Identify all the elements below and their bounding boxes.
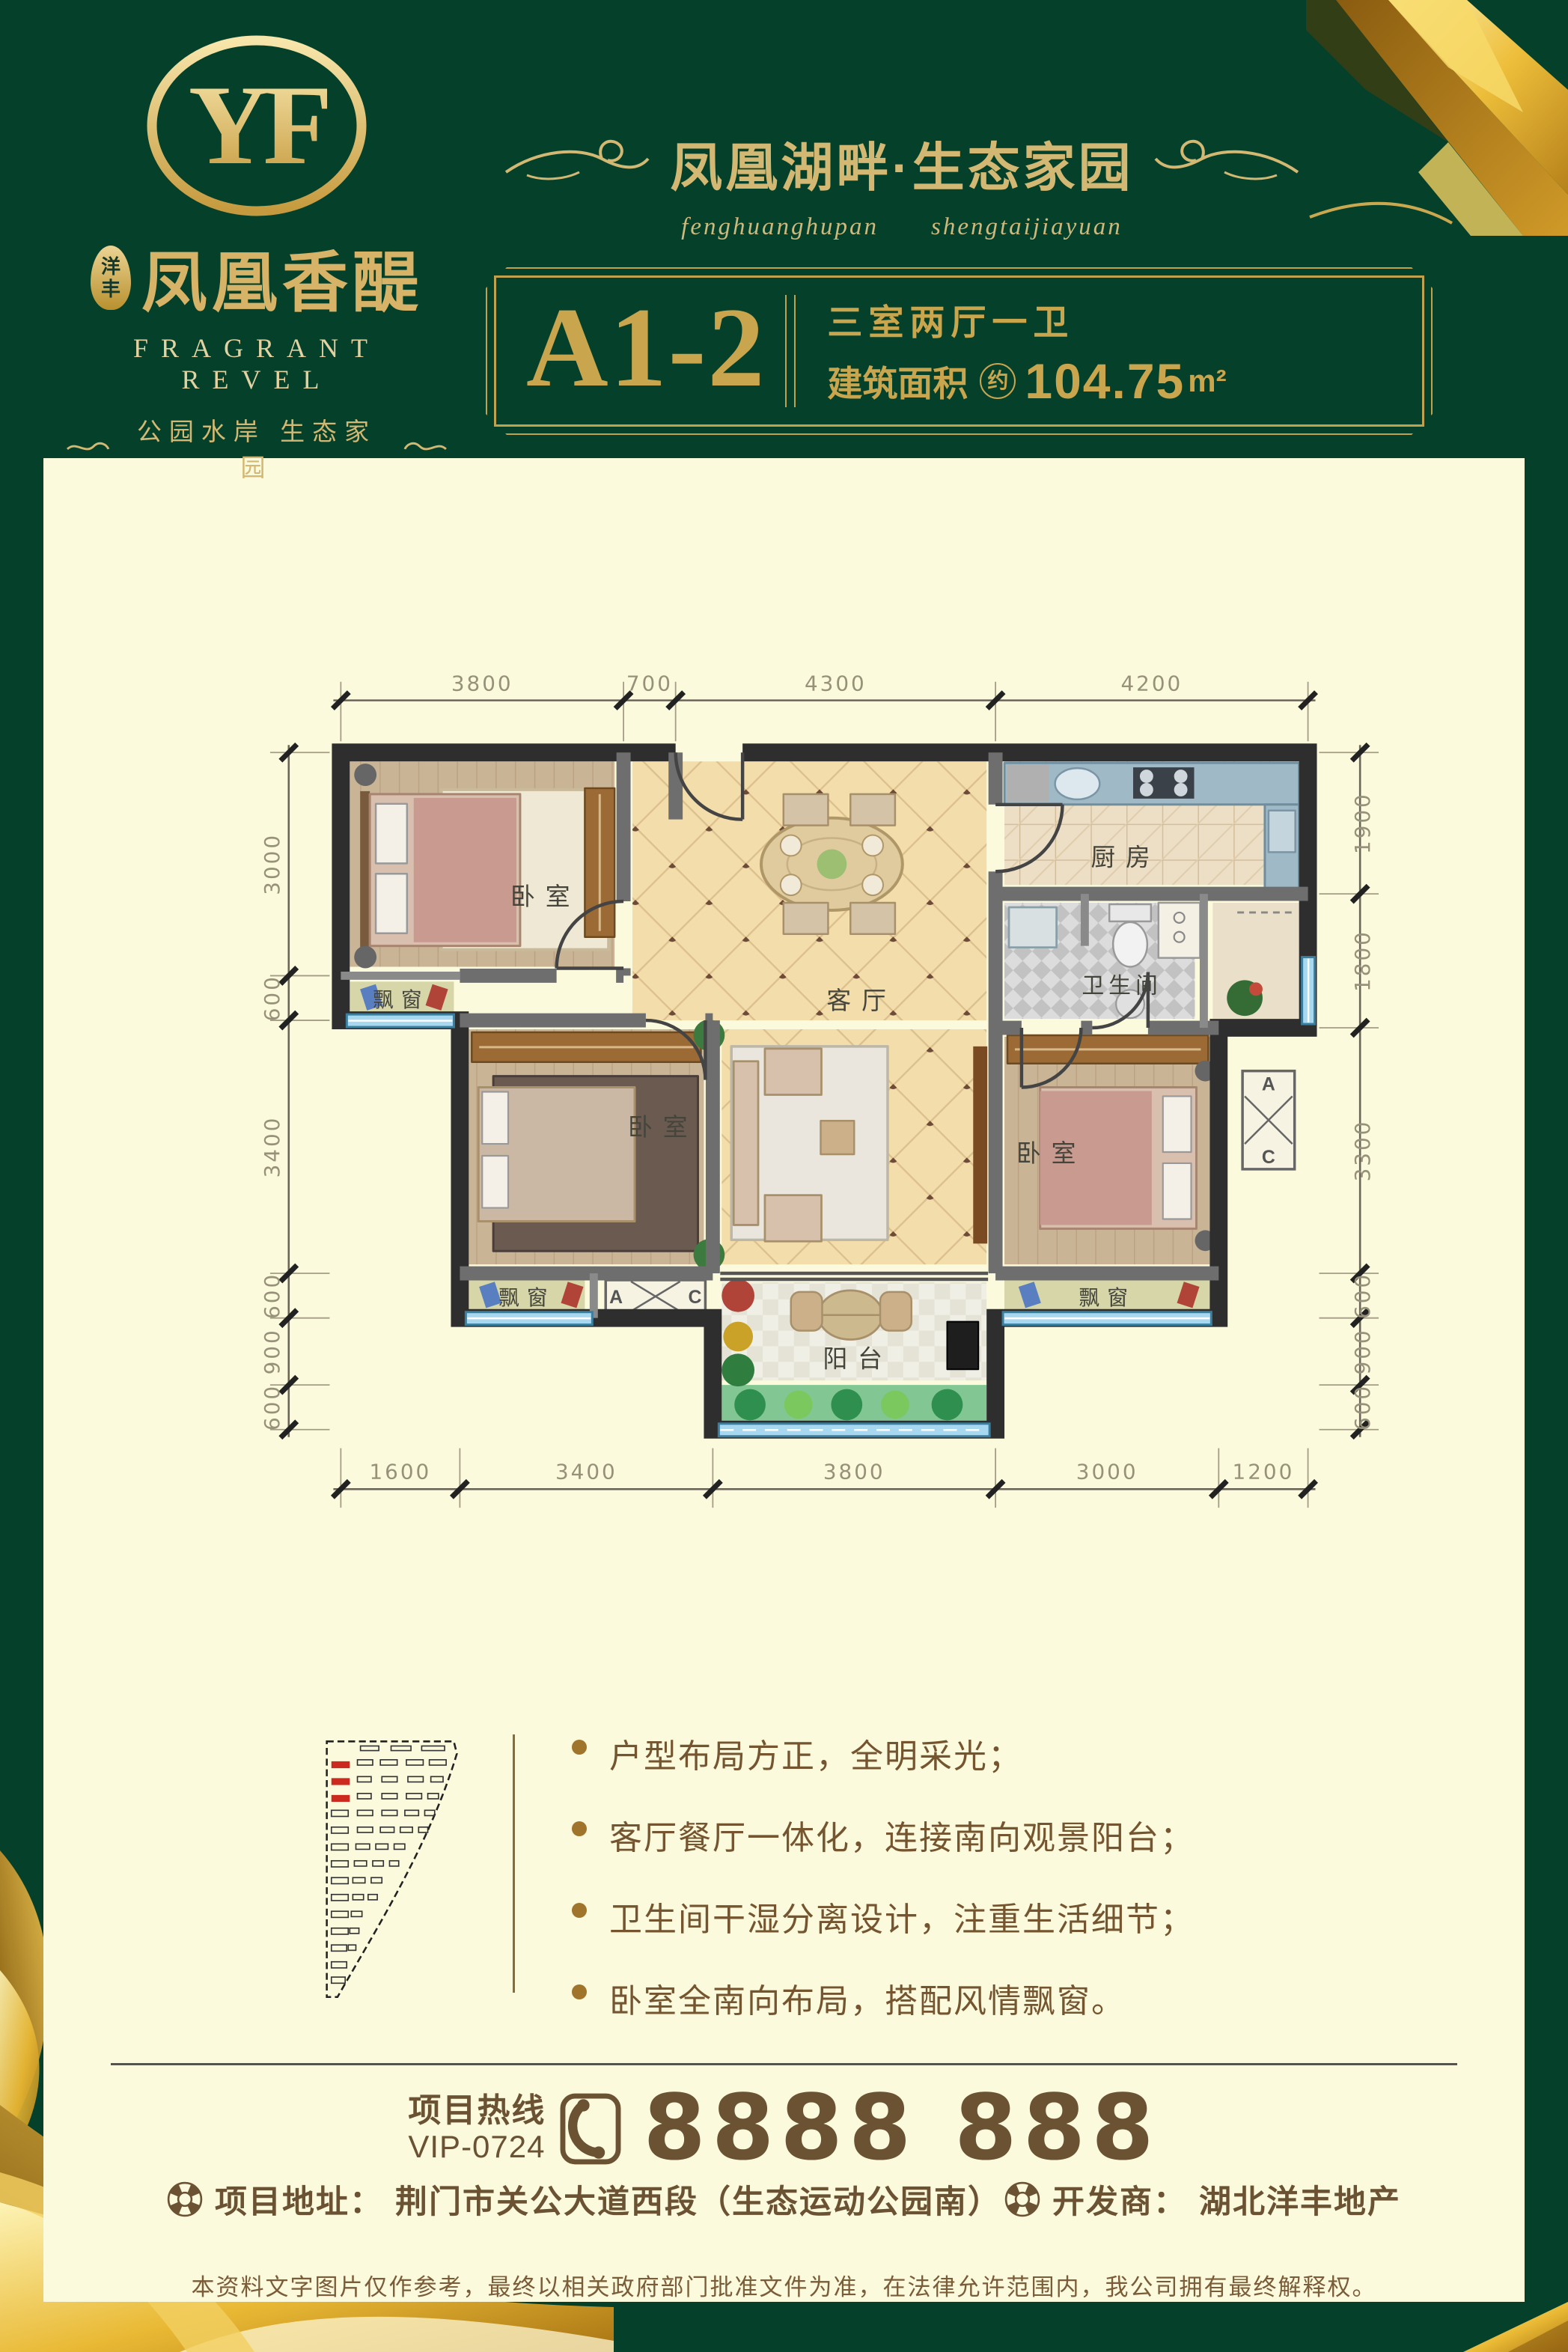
brand-slogan: 公园水岸 生态家园	[123, 412, 390, 484]
dim-bottom-1: 1600	[370, 1459, 432, 1484]
project-address-group: 项目地址：荆门市关公大道西段（生态运动公园南）	[167, 2176, 1001, 2222]
area-value: 104.75	[1025, 353, 1185, 409]
ac-label-a2: A	[1262, 1075, 1275, 1095]
room-label-balcony: 阳台	[823, 1344, 892, 1372]
dim-bottom-3: 3800	[823, 1459, 885, 1484]
dim-right-1: 1900	[1350, 792, 1375, 854]
room-label-living: 客厅	[826, 987, 896, 1014]
flyer-page: YF 洋 丰 凤凰香醍 FRAGRANT REVEL 公园水岸 生态家园	[0, 0, 1568, 2352]
room-label-bedroom-1: 卧室	[510, 883, 580, 910]
unit-area-line: 建筑面积 约 104.75 m²	[827, 353, 1226, 409]
brand-name-en: FRAGRANT REVEL	[66, 332, 448, 395]
brand-logo-block: YF 洋 丰 凤凰香醍 FRAGRANT REVEL 公园水岸 生态家园	[66, 34, 448, 484]
developer-value: 湖北洋丰地产	[1199, 2176, 1401, 2222]
brand-slogan-row: 公园水岸 生态家园	[66, 412, 448, 484]
brand-seal: 洋 丰	[91, 246, 131, 310]
hotline-vip: VIP-0724	[408, 2130, 545, 2164]
title-pinyin-1: fenghuanghupan	[681, 213, 879, 241]
dim-left-1: 3000	[260, 833, 284, 895]
unit-spec-box: A1-2 三室两厅一卫 建筑面积 约 104.75 m²	[494, 275, 1424, 427]
unit-rooms: 三室两厅一卫	[827, 293, 1226, 345]
dim-top-4: 4200	[1120, 671, 1183, 696]
approx-badge: 约	[980, 363, 1016, 399]
dim-top-3: 4300	[805, 671, 867, 696]
room-label-bedroom-2: 卧室	[628, 1113, 698, 1141]
buoy-icon	[1004, 2181, 1040, 2217]
dim-bottom-4: 3000	[1076, 1459, 1138, 1484]
seal-char-1: 洋	[101, 255, 121, 278]
buoy-icon	[167, 2181, 203, 2217]
swirl-right-icon	[403, 439, 448, 457]
seal-char-2: 丰	[101, 278, 121, 300]
ac-label-a: A	[609, 1288, 623, 1308]
ac-label-c2: C	[1262, 1148, 1275, 1168]
flourish-left-icon	[504, 136, 650, 192]
feature-item: 户型布局方正，全明采光；	[567, 1729, 1316, 1777]
yf-monogram-icon: YF	[144, 34, 369, 222]
swirl-left-icon	[66, 439, 110, 457]
dim-right-3: 3300	[1350, 1120, 1375, 1182]
dim-right-5: 900	[1350, 1328, 1375, 1374]
feature-item: 卧室全南向布局，搭配风情飘窗。	[567, 1974, 1316, 2022]
dim-right-6: 600	[1350, 1384, 1375, 1431]
content-panel: A C A C	[43, 458, 1525, 2302]
spec-divider	[785, 295, 796, 407]
hotline-number: 8888 888	[643, 2077, 1159, 2181]
dim-left-3: 3400	[260, 1116, 284, 1178]
feature-item: 客厅餐厅一体化，连接南向观景阳台；	[567, 1811, 1316, 1859]
title-pinyin-2: shengtaijiayuan	[931, 213, 1123, 241]
room-label-bedroom-3: 卧室	[1016, 1139, 1086, 1167]
phone-icon	[559, 2093, 622, 2165]
developer-label: 开发商：	[1052, 2176, 1187, 2222]
flourish-right-icon	[1153, 136, 1299, 192]
dim-left-5: 900	[260, 1328, 284, 1374]
feature-item: 卫生间干湿分离设计，注重生活细节；	[567, 1892, 1316, 1940]
unit-code: A1-2	[526, 282, 766, 412]
dim-left-4: 600	[260, 1273, 284, 1319]
gold-corner-bottom-right	[1441, 2302, 1568, 2352]
address-label: 项目地址：	[215, 2176, 383, 2222]
header-title-block: 凤凰湖畔·生态家园 fenghuanghupan shengtaijiayuan	[430, 126, 1373, 241]
bay-label-3: 飘窗	[1079, 1286, 1135, 1309]
room-label-kitchen: 厨房	[1090, 843, 1160, 871]
bay-label-2: 飘窗	[498, 1286, 555, 1309]
dim-left-2: 600	[260, 975, 284, 1021]
area-unit: m²	[1188, 363, 1226, 399]
siteplan-highlighted-buildings	[332, 1761, 350, 1802]
footer-divider	[111, 2063, 1457, 2065]
brand-name-cn: 凤凰香醍	[141, 230, 423, 325]
bay-label-1: 飘窗	[373, 988, 430, 1011]
dim-top-2: 700	[626, 671, 673, 696]
developer-group: 开发商：湖北洋丰地产	[1004, 2176, 1401, 2222]
dim-bottom-5: 1200	[1233, 1459, 1295, 1484]
room-label-bathroom: 卫生间	[1082, 973, 1162, 998]
floorplan: A C A C	[229, 656, 1412, 1526]
dim-bottom-2: 3400	[555, 1459, 617, 1484]
hotline-row: 项目热线 VIP-0724 8888 888	[43, 2077, 1525, 2181]
area-label: 建筑面积	[827, 355, 968, 406]
dim-right-4: 600	[1350, 1273, 1375, 1319]
disclaimer: 本资料文字图片仅作参考，最终以相关政府部门批准文件为准，在法律允许范围内，我公司…	[43, 2268, 1525, 2302]
monogram-text: YF	[189, 62, 328, 188]
address-value: 荆门市关公大道西段（生态运动公园南）	[395, 2176, 1001, 2222]
page-title: 凤凰湖畔·生态家园	[670, 126, 1133, 201]
dim-top-1: 3800	[451, 671, 513, 696]
hotline-label: 项目热线	[408, 2093, 546, 2129]
address-row: 项目地址：荆门市关公大道西段（生态运动公园南） 开发商：湖北洋丰地产	[43, 2176, 1525, 2222]
ac-label-c: C	[689, 1288, 702, 1308]
feature-list: 户型布局方正，全明采光； 客厅餐厅一体化，连接南向观景阳台； 卫生间干湿分离设计…	[567, 1729, 1316, 2056]
dim-right-2: 1800	[1350, 930, 1375, 992]
siteplan-thumbnail	[314, 1731, 468, 2006]
feature-rule	[513, 1734, 515, 1993]
dim-left-6: 600	[260, 1384, 284, 1431]
